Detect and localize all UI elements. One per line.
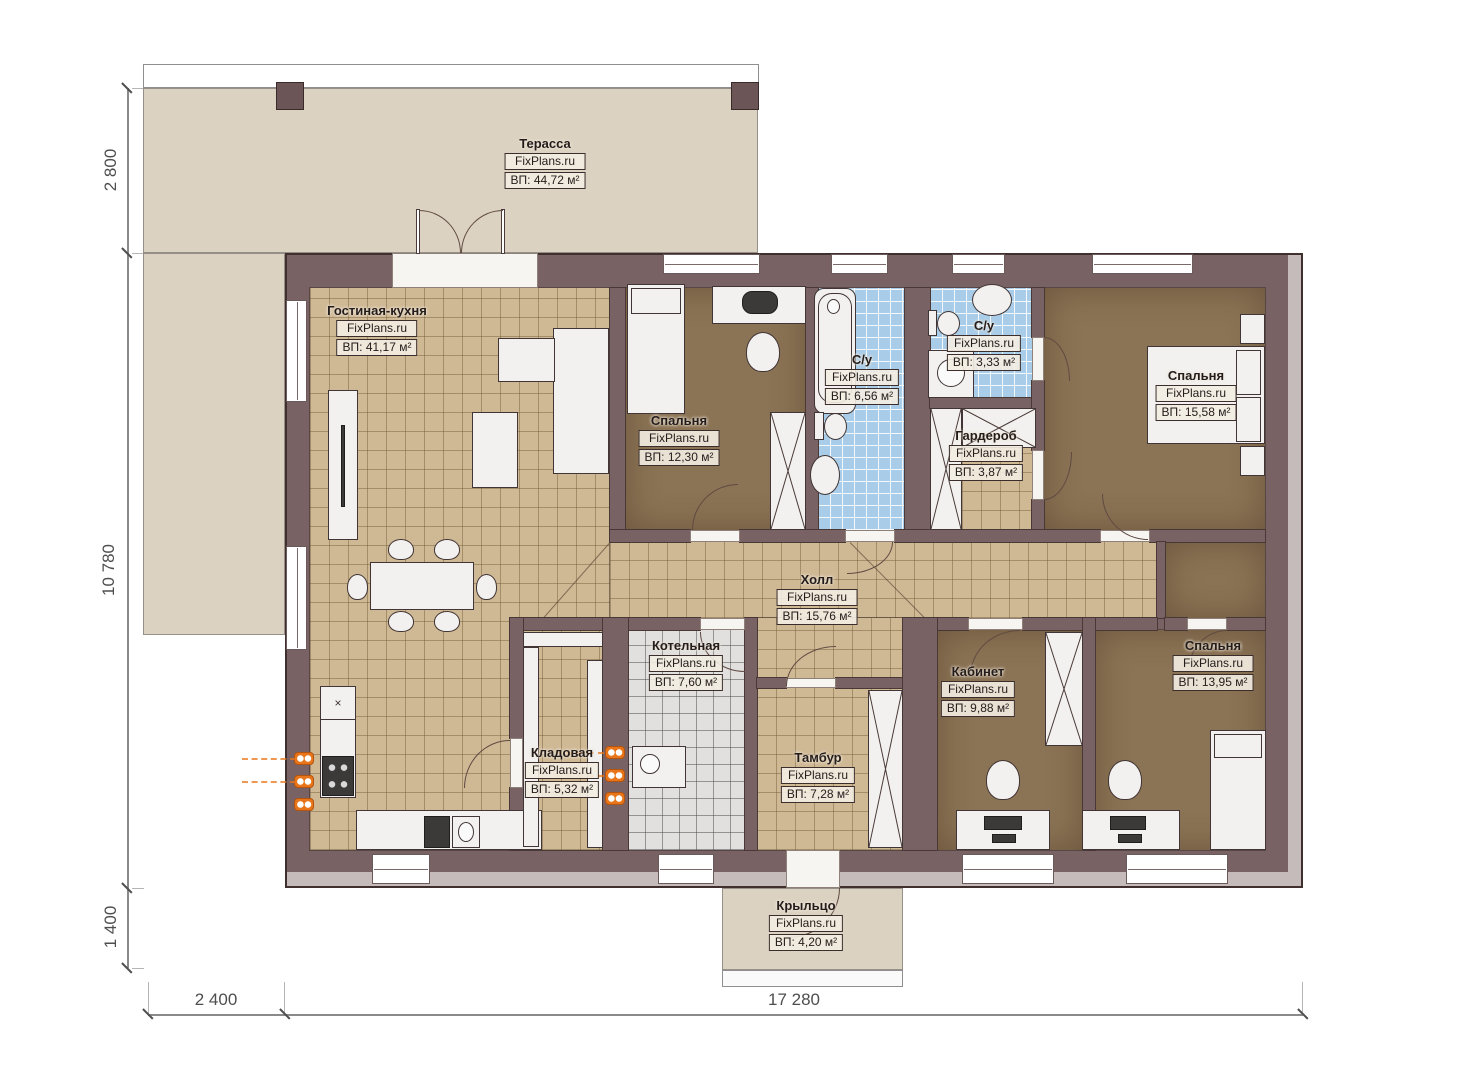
room-label-bath2: С/у FixPlans.ru ВП: 3,33 м² <box>947 318 1021 371</box>
wardrobe-cabinet <box>1045 632 1083 746</box>
brand-watermark: FixPlans.ru <box>949 445 1023 462</box>
brand-watermark: FixPlans.ru <box>505 153 586 170</box>
ext-line <box>148 982 149 1014</box>
door-opening-bath2 <box>1032 337 1044 381</box>
boiler-pump <box>640 754 660 774</box>
room-label-wardrobe: Гардероб FixPlans.ru ВП: 3,87 м² <box>949 428 1023 481</box>
room-info-box: FixPlans.ru ВП: 4,20 м² <box>769 915 843 951</box>
brand-watermark: FixPlans.ru <box>941 681 1015 698</box>
keyboard <box>992 834 1016 843</box>
washbasin <box>972 284 1012 316</box>
dining-chair <box>434 611 460 632</box>
wall-nook <box>1157 542 1165 618</box>
wall-corridor-north <box>895 530 1100 542</box>
floor-bedroom3-nook <box>1165 542 1265 618</box>
dining-chair <box>476 574 497 600</box>
ext-line <box>284 982 285 1014</box>
radiator <box>294 775 314 788</box>
room-area: ВП: 12,30 м² <box>639 449 720 466</box>
room-name: Крыльцо <box>776 898 835 913</box>
dining-chair <box>434 539 460 560</box>
brand-watermark: FixPlans.ru <box>781 767 855 784</box>
kitchen-sink-unit: × <box>320 686 356 720</box>
room-label-bath1: С/у FixPlans.ru ВП: 6,56 м² <box>825 352 899 405</box>
wall-outer-band-right <box>1288 255 1301 886</box>
wardrobe-cabinet <box>770 412 806 530</box>
wall-boiler-east <box>745 618 757 850</box>
window-bottom <box>658 854 714 884</box>
window-top <box>663 254 760 274</box>
brand-watermark: FixPlans.ru <box>1156 385 1237 402</box>
radiator <box>605 746 625 759</box>
room-info-box: FixPlans.ru ВП: 3,33 м² <box>947 335 1021 371</box>
brand-watermark: FixPlans.ru <box>769 915 843 932</box>
room-label-living: Гостиная-кухня FixPlans.ru ВП: 41,17 м² <box>327 303 427 356</box>
door-opening-bedroom3 <box>1187 618 1227 630</box>
wall-corridor-north <box>1150 530 1265 542</box>
sink-bowl <box>458 822 474 842</box>
terrace-post-right <box>731 82 759 110</box>
nightstand <box>1240 314 1265 344</box>
door-opening-boiler <box>700 618 745 630</box>
window-top <box>952 254 1005 274</box>
door-opening-wardrobe <box>1032 450 1044 500</box>
terrace-area-left <box>143 253 285 635</box>
wall-bath2-wardrobe <box>930 398 1032 408</box>
dim-house-width: 17 280 <box>768 990 820 1010</box>
dishwasher <box>424 816 450 848</box>
sofa-chaise <box>498 338 555 382</box>
wall-storage-west <box>510 618 523 738</box>
room-label-boiler: Котельная FixPlans.ru ВП: 7,60 м² <box>649 638 723 691</box>
room-area: ВП: 3,87 м² <box>949 464 1023 481</box>
room-info-box: FixPlans.ru ВП: 9,88 м² <box>941 681 1015 717</box>
room-info-box: FixPlans.ru ВП: 41,17 м² <box>337 320 418 356</box>
window-top <box>1092 254 1193 274</box>
toilet-tank <box>814 412 824 440</box>
wall-bath1-bath2 <box>905 288 930 530</box>
floor-plan: 2 800 10 780 1 400 2 400 17 280 <box>0 0 1473 1080</box>
room-name: Кладовая <box>531 745 593 760</box>
room-area: ВП: 4,20 м² <box>769 934 843 951</box>
door-opening-office <box>968 618 1023 630</box>
room-area: ВП: 15,58 м² <box>1156 404 1237 421</box>
room-label-bedroom1: Спальня FixPlans.ru ВП: 12,30 м² <box>639 413 720 466</box>
tv <box>341 425 345 507</box>
printer <box>742 291 778 314</box>
coffee-table <box>472 412 518 488</box>
monitor <box>984 816 1022 830</box>
door-opening-bedroom1 <box>690 530 740 542</box>
dim-house-height: 10 780 <box>99 544 119 596</box>
dining-table <box>370 562 474 610</box>
room-area: ВП: 41,17 м² <box>337 339 418 356</box>
radiator-pipe <box>242 781 296 783</box>
entrance-door-opening <box>786 850 840 888</box>
window-bottom <box>962 854 1054 884</box>
ext-line <box>132 888 144 889</box>
brand-watermark: FixPlans.ru <box>1173 655 1254 672</box>
ext-line <box>1302 982 1303 1014</box>
room-label-storage: Кладовая FixPlans.ru ВП: 5,32 м² <box>525 745 599 798</box>
room-info-box: FixPlans.ru ВП: 7,60 м² <box>649 655 723 691</box>
pillow <box>631 288 681 314</box>
room-name: Холл <box>801 572 834 587</box>
radiator <box>294 752 314 765</box>
wall-vestibule-office <box>903 618 937 850</box>
room-label-terrace: Терасса FixPlans.ru ВП: 44,72 м² <box>505 136 586 189</box>
room-area: ВП: 5,32 м² <box>525 781 599 798</box>
keyboard <box>1118 834 1142 843</box>
radiator <box>294 798 314 811</box>
wall-storage-top <box>510 618 615 630</box>
room-area: ВП: 15,76 м² <box>777 608 858 625</box>
sofa <box>553 328 609 474</box>
room-name: Кабинет <box>952 664 1005 679</box>
nightstand <box>1240 446 1265 476</box>
brand-watermark: FixPlans.ru <box>337 320 418 337</box>
room-area: ВП: 13,95 м² <box>1173 674 1254 691</box>
room-info-box: FixPlans.ru ВП: 6,56 м² <box>825 369 899 405</box>
monitor <box>1110 816 1146 830</box>
terrace-door-opening <box>392 253 538 288</box>
room-info-box: FixPlans.ru ВП: 15,58 м² <box>1156 385 1237 421</box>
room-name: Котельная <box>652 638 720 653</box>
room-info-box: FixPlans.ru ВП: 7,28 м² <box>781 767 855 803</box>
room-area: ВП: 6,56 м² <box>825 388 899 405</box>
terrace-post-left <box>276 82 304 110</box>
pillow <box>1236 350 1261 395</box>
window-bottom <box>1126 854 1228 884</box>
wall-suite <box>1032 288 1044 337</box>
room-area: ВП: 3,33 м² <box>947 354 1021 371</box>
room-name: Тамбур <box>794 750 841 765</box>
dim-line-left <box>127 88 129 968</box>
brand-watermark: FixPlans.ru <box>825 369 899 386</box>
room-info-box: FixPlans.ru ВП: 12,30 м² <box>639 430 720 466</box>
porch-step <box>722 970 903 987</box>
pillow <box>1214 734 1262 758</box>
toilet-bowl <box>824 413 847 440</box>
room-name: Терасса <box>519 136 571 151</box>
wall-corridor-south <box>1227 618 1265 630</box>
room-area: ВП: 9,88 м² <box>941 700 1015 717</box>
radiator <box>605 792 625 805</box>
wall-corridor-north <box>740 530 845 542</box>
room-label-bedroom2: Спальня FixPlans.ru ВП: 15,58 м² <box>1156 368 1237 421</box>
door-opening-bath1 <box>845 530 895 542</box>
toilet-tank <box>928 310 937 336</box>
radiator-pipe <box>242 758 296 760</box>
desk-chair <box>746 332 780 372</box>
room-name: Гардероб <box>955 428 1016 443</box>
dim-terrace-depth: 2 800 <box>101 149 121 192</box>
room-info-box: FixPlans.ru ВП: 3,87 м² <box>949 445 1023 481</box>
dim-line-bottom <box>148 1014 1303 1016</box>
dim-terrace-width: 2 400 <box>195 990 238 1010</box>
room-name: С/у <box>852 352 872 367</box>
wall-vestibule-north <box>757 678 786 688</box>
bathtub-drain <box>827 299 840 314</box>
room-name: Спальня <box>651 413 707 428</box>
door-opening-storage <box>510 738 523 788</box>
room-label-bedroom3: Спальня FixPlans.ru ВП: 13,95 м² <box>1173 638 1254 691</box>
stove <box>322 756 354 796</box>
room-label-vestibule: Тамбур FixPlans.ru ВП: 7,28 м² <box>781 750 855 803</box>
pillow <box>1236 397 1261 442</box>
room-info-box: FixPlans.ru ВП: 13,95 м² <box>1173 655 1254 691</box>
office-chair <box>986 760 1020 800</box>
brand-watermark: FixPlans.ru <box>649 655 723 672</box>
room-info-box: FixPlans.ru ВП: 15,76 м² <box>777 589 858 625</box>
ext-line <box>132 968 144 969</box>
room-name: Спальня <box>1168 368 1224 383</box>
office-chair <box>1108 760 1142 800</box>
room-area: ВП: 7,28 м² <box>781 786 855 803</box>
room-label-office: Кабинет FixPlans.ru ВП: 9,88 м² <box>941 664 1015 717</box>
room-info-box: FixPlans.ru ВП: 44,72 м² <box>505 153 586 189</box>
brand-watermark: FixPlans.ru <box>525 762 599 779</box>
window-top <box>831 254 888 274</box>
room-name: Гостиная-кухня <box>327 303 427 318</box>
window-left <box>286 546 307 650</box>
window-bottom <box>372 854 430 884</box>
storage-shelf <box>523 632 603 647</box>
radiator <box>605 769 625 782</box>
wall-corridor-north <box>610 530 690 542</box>
wall-corridor-south <box>1165 618 1187 630</box>
wardrobe-cabinet <box>868 690 903 848</box>
wall-storage-boiler <box>603 618 628 850</box>
room-name: С/у <box>974 318 994 333</box>
window-left <box>286 300 307 402</box>
brand-watermark: FixPlans.ru <box>639 430 720 447</box>
room-name: Спальня <box>1185 638 1241 653</box>
dining-chair <box>388 611 414 632</box>
wall-vestibule-north <box>836 678 903 688</box>
room-label-hall: Холл FixPlans.ru ВП: 15,76 м² <box>777 572 858 625</box>
brand-watermark: FixPlans.ru <box>777 589 858 606</box>
room-label-porch: Крыльцо FixPlans.ru ВП: 4,20 м² <box>769 898 843 951</box>
wall-kitchen-bedroom1 <box>610 288 625 530</box>
dining-chair <box>347 574 368 600</box>
room-area: ВП: 7,60 м² <box>649 674 723 691</box>
room-area: ВП: 44,72 м² <box>505 172 586 189</box>
brand-watermark: FixPlans.ru <box>947 335 1021 352</box>
washbasin <box>810 455 840 495</box>
room-info-box: FixPlans.ru ВП: 5,32 м² <box>525 762 599 798</box>
dining-chair <box>388 539 414 560</box>
wall-suite <box>1032 500 1044 530</box>
dim-porch-depth: 1 400 <box>101 906 121 949</box>
terrace-roof-edge <box>143 64 759 88</box>
